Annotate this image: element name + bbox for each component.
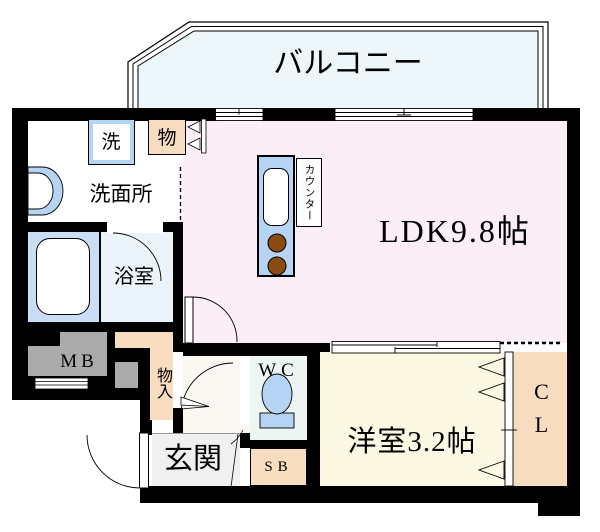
western-room-label: 洋室3.2帖	[317, 424, 507, 460]
hall-storage-door-gap	[173, 352, 183, 408]
wc-label: WC	[250, 357, 307, 383]
wc-door-gap	[240, 356, 250, 425]
window-balcony	[335, 109, 473, 121]
wall-right	[567, 108, 580, 503]
meter-box-small	[115, 362, 138, 388]
balcony-label: バルコニー	[248, 47, 448, 81]
bathroom-label: 浴室	[104, 264, 164, 290]
wall-corridor-left-lower	[173, 408, 183, 435]
washer-label: 洗	[95, 130, 127, 154]
floor-plan: カウンター	[0, 0, 600, 532]
wall-left	[12, 108, 28, 400]
bath-door-gap	[107, 222, 163, 233]
western-room-floor	[320, 352, 505, 486]
counter-label: カウンター	[302, 164, 317, 222]
wall-bottom	[140, 486, 580, 503]
meter-box-upper	[60, 332, 107, 346]
kitchen-sink	[263, 168, 289, 226]
wall-top-mid	[263, 108, 335, 121]
entrance-door	[87, 433, 149, 488]
shoe-box-label: SB	[250, 455, 307, 479]
entrance-label: 玄関	[149, 439, 237, 479]
storage-label: 物	[153, 126, 181, 150]
ldk-label: LDK9.8帖	[342, 211, 568, 251]
meter-box-label: MB	[53, 350, 105, 372]
window-kitchen	[216, 109, 264, 121]
hall-storage-upper	[115, 332, 173, 348]
hall-storage-label: 物入	[150, 352, 174, 414]
bath-divider	[99, 232, 101, 322]
wall-western-left	[307, 343, 320, 488]
closet-label: CL	[526, 372, 556, 452]
bathtub	[36, 238, 90, 315]
washroom-label: 洗面所	[76, 181, 166, 207]
counter-box: カウンター	[296, 158, 322, 227]
